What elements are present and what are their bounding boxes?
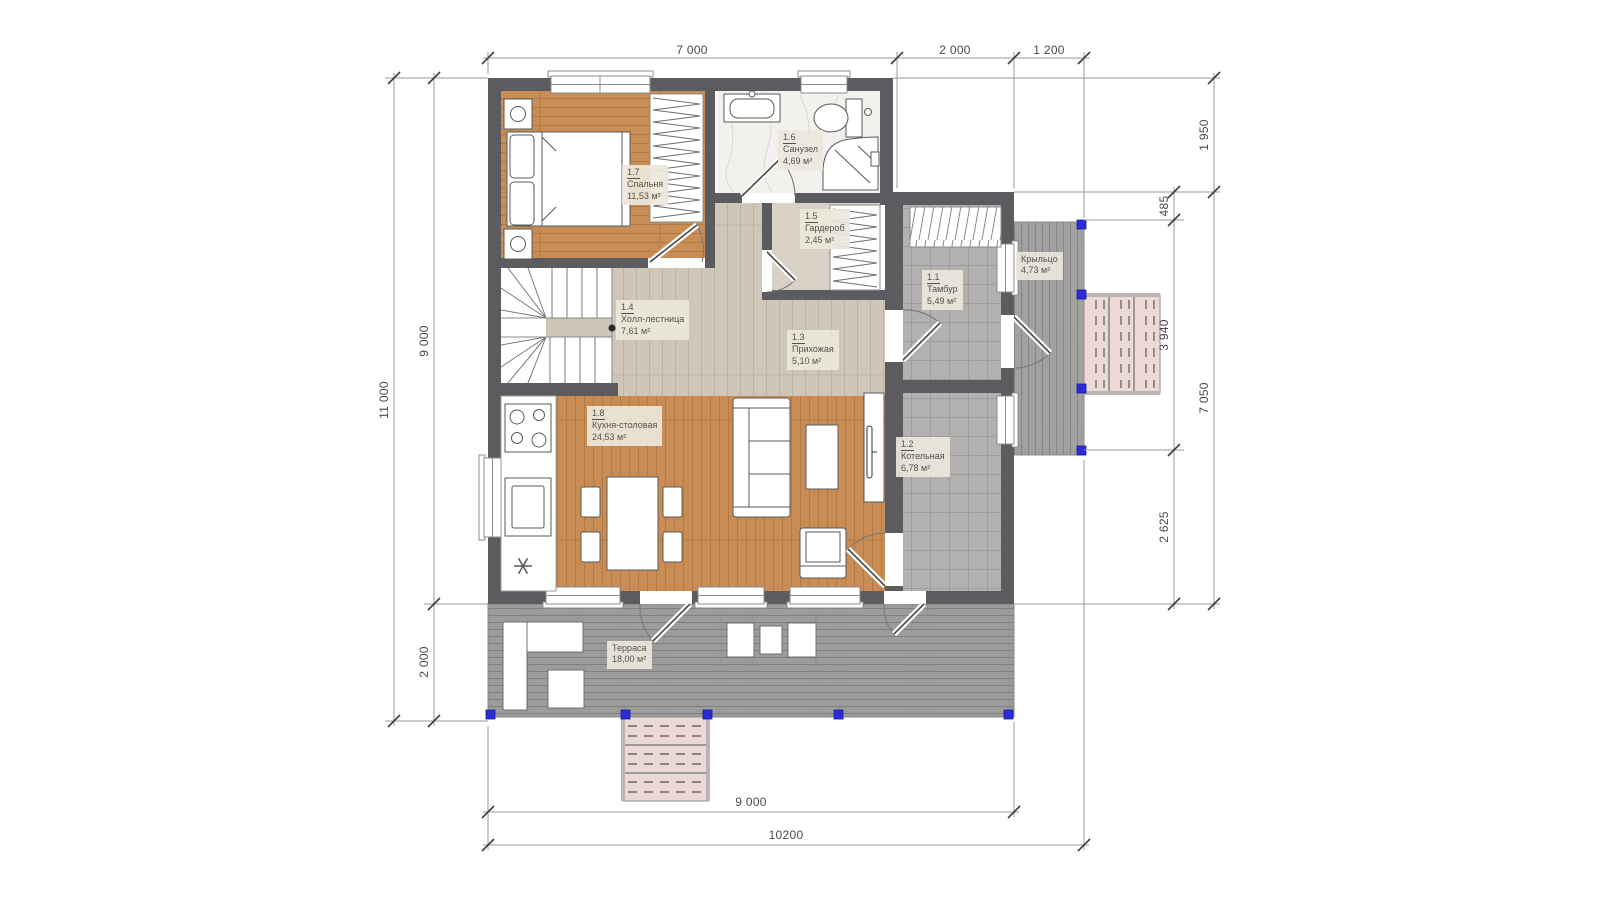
shower-valve bbox=[871, 152, 879, 166]
dining-table bbox=[607, 477, 658, 570]
chair bbox=[581, 487, 600, 517]
room-name: Спальня bbox=[627, 179, 663, 190]
wall-tambur-kotelnaya bbox=[903, 380, 1001, 393]
room-label-tambur: 1.1 Тамбур 5,49 м² bbox=[922, 270, 963, 310]
room-number: 1.5 bbox=[805, 211, 818, 223]
dim-top-2: 2 000 bbox=[939, 43, 971, 57]
tambur-coat-rack bbox=[910, 207, 1001, 247]
sofa bbox=[733, 398, 790, 517]
wall-bedroom-right bbox=[705, 91, 715, 268]
window-kotelnaya bbox=[997, 393, 1018, 447]
room-area: 5,10 м² bbox=[792, 356, 821, 367]
room-name: Котельная bbox=[901, 451, 945, 462]
room-label-kotelnaya: 1.2 Котельная 6,78 м² bbox=[896, 437, 950, 477]
terrace-side-table bbox=[760, 626, 782, 654]
room-name: Терраса bbox=[612, 643, 647, 654]
window-kitchen-left bbox=[479, 455, 501, 540]
dim-right-outer-2: 7 050 bbox=[1197, 382, 1211, 414]
room-label-hall: 1.4 Холл-лестница 7,61 м² bbox=[616, 300, 689, 340]
pillow bbox=[510, 135, 534, 178]
room-label-bedroom: 1.7 Спальня 11,53 м² bbox=[622, 165, 668, 205]
room-number: 1.1 bbox=[927, 272, 940, 284]
porch-steps bbox=[1084, 293, 1160, 395]
room-area: 24,53 м² bbox=[592, 432, 626, 443]
room-number: 1.3 bbox=[792, 332, 805, 344]
room-name: Прихожая bbox=[792, 344, 834, 355]
tap-icon bbox=[749, 91, 755, 97]
room-area: 6,78 м² bbox=[901, 463, 930, 474]
room-number: 1.7 bbox=[627, 167, 640, 179]
chair bbox=[663, 532, 682, 562]
terrace-table bbox=[548, 670, 584, 708]
window-bedroom bbox=[548, 71, 653, 93]
chair bbox=[663, 487, 682, 517]
room-area: 7,61 м² bbox=[621, 326, 650, 337]
room-area: 4,69 м² bbox=[783, 156, 812, 167]
room-name: Гардероб bbox=[805, 223, 845, 234]
nightstand bbox=[504, 99, 532, 129]
room-area: 4,73 м² bbox=[1021, 265, 1050, 276]
terrace-counter-leg bbox=[503, 622, 527, 710]
dim-right-inner-3: 2 625 bbox=[1157, 511, 1171, 543]
dim-left-inner-1: 9 000 bbox=[417, 325, 431, 357]
dim-left-inner-2: 2 000 bbox=[417, 646, 431, 678]
wall-wing-top bbox=[893, 192, 1014, 205]
coffee-table bbox=[806, 425, 838, 489]
room-name: Холл-лестница bbox=[621, 314, 684, 325]
kotelnaya-floor bbox=[903, 393, 1001, 591]
room-number: 1.2 bbox=[901, 439, 914, 451]
wall-bathroom-bottom bbox=[705, 193, 893, 203]
room-area: 2,45 м² bbox=[805, 235, 834, 246]
room-name: Тамбур bbox=[927, 284, 958, 295]
stair-start-dot bbox=[609, 325, 616, 332]
dim-bottom-2: 10200 bbox=[769, 828, 804, 842]
room-area: 11,53 м² bbox=[627, 191, 661, 202]
armchair bbox=[800, 528, 846, 578]
dim-top-3: 1 200 bbox=[1033, 43, 1065, 57]
room-name: Крыльцо bbox=[1021, 254, 1058, 265]
window-tambur bbox=[997, 241, 1018, 295]
room-number: 1.4 bbox=[621, 302, 634, 314]
dim-top-1: 7 000 bbox=[676, 43, 708, 57]
toilet-bowl bbox=[814, 104, 848, 132]
wall-garderob-bottom bbox=[762, 290, 893, 300]
nightstand bbox=[504, 229, 532, 259]
room-label-porch: Крыльцо 4,73 м² bbox=[1016, 252, 1063, 280]
window-living-1 bbox=[695, 587, 767, 608]
room-label-kitchen: 1.8 Кухня-столовая 24,53 м² bbox=[587, 406, 662, 446]
terrace bbox=[488, 604, 1014, 717]
room-number: 1.6 bbox=[783, 132, 796, 144]
room-area: 18,00 м² bbox=[612, 654, 646, 665]
room-label-garderob: 1.5 Гардероб 2,45 м² bbox=[800, 209, 850, 249]
window-bathroom bbox=[798, 71, 850, 93]
floor-plan: 1.7 Спальня 11,53 м² 1.6 Санузел 4,69 м²… bbox=[0, 0, 1600, 900]
flush-button-icon bbox=[865, 109, 872, 116]
dim-left-outer: 11 000 bbox=[377, 381, 391, 419]
tv bbox=[867, 426, 872, 478]
pillow bbox=[510, 182, 534, 225]
terrace-chair bbox=[788, 623, 816, 657]
dim-right-outer-1: 1 950 bbox=[1197, 119, 1211, 151]
room-label-prihozhaya: 1.3 Прихожая 5,10 м² bbox=[787, 330, 839, 370]
room-area: 5,49 м² bbox=[927, 296, 956, 307]
room-label-bathroom: 1.6 Санузел 4,69 м² bbox=[778, 130, 823, 170]
terrace-chair bbox=[727, 623, 754, 657]
terrace-steps bbox=[621, 717, 710, 801]
stairs bbox=[501, 268, 616, 383]
room-number: 1.8 bbox=[592, 408, 605, 420]
dim-right-inner-2: 3 940 bbox=[1157, 319, 1171, 351]
room-name: Кухня-столовая bbox=[592, 420, 657, 431]
dim-right-inner-1: 485 bbox=[1157, 196, 1171, 217]
wall-hall-kitchen bbox=[488, 383, 618, 396]
chair bbox=[581, 532, 600, 562]
room-name: Санузел bbox=[783, 144, 818, 155]
window-living-2 bbox=[787, 587, 863, 608]
wall-bathroom-right bbox=[880, 78, 893, 205]
room-label-terrace: Терраса 18,00 м² bbox=[607, 641, 652, 669]
dim-bottom-1: 9 000 bbox=[735, 795, 767, 809]
